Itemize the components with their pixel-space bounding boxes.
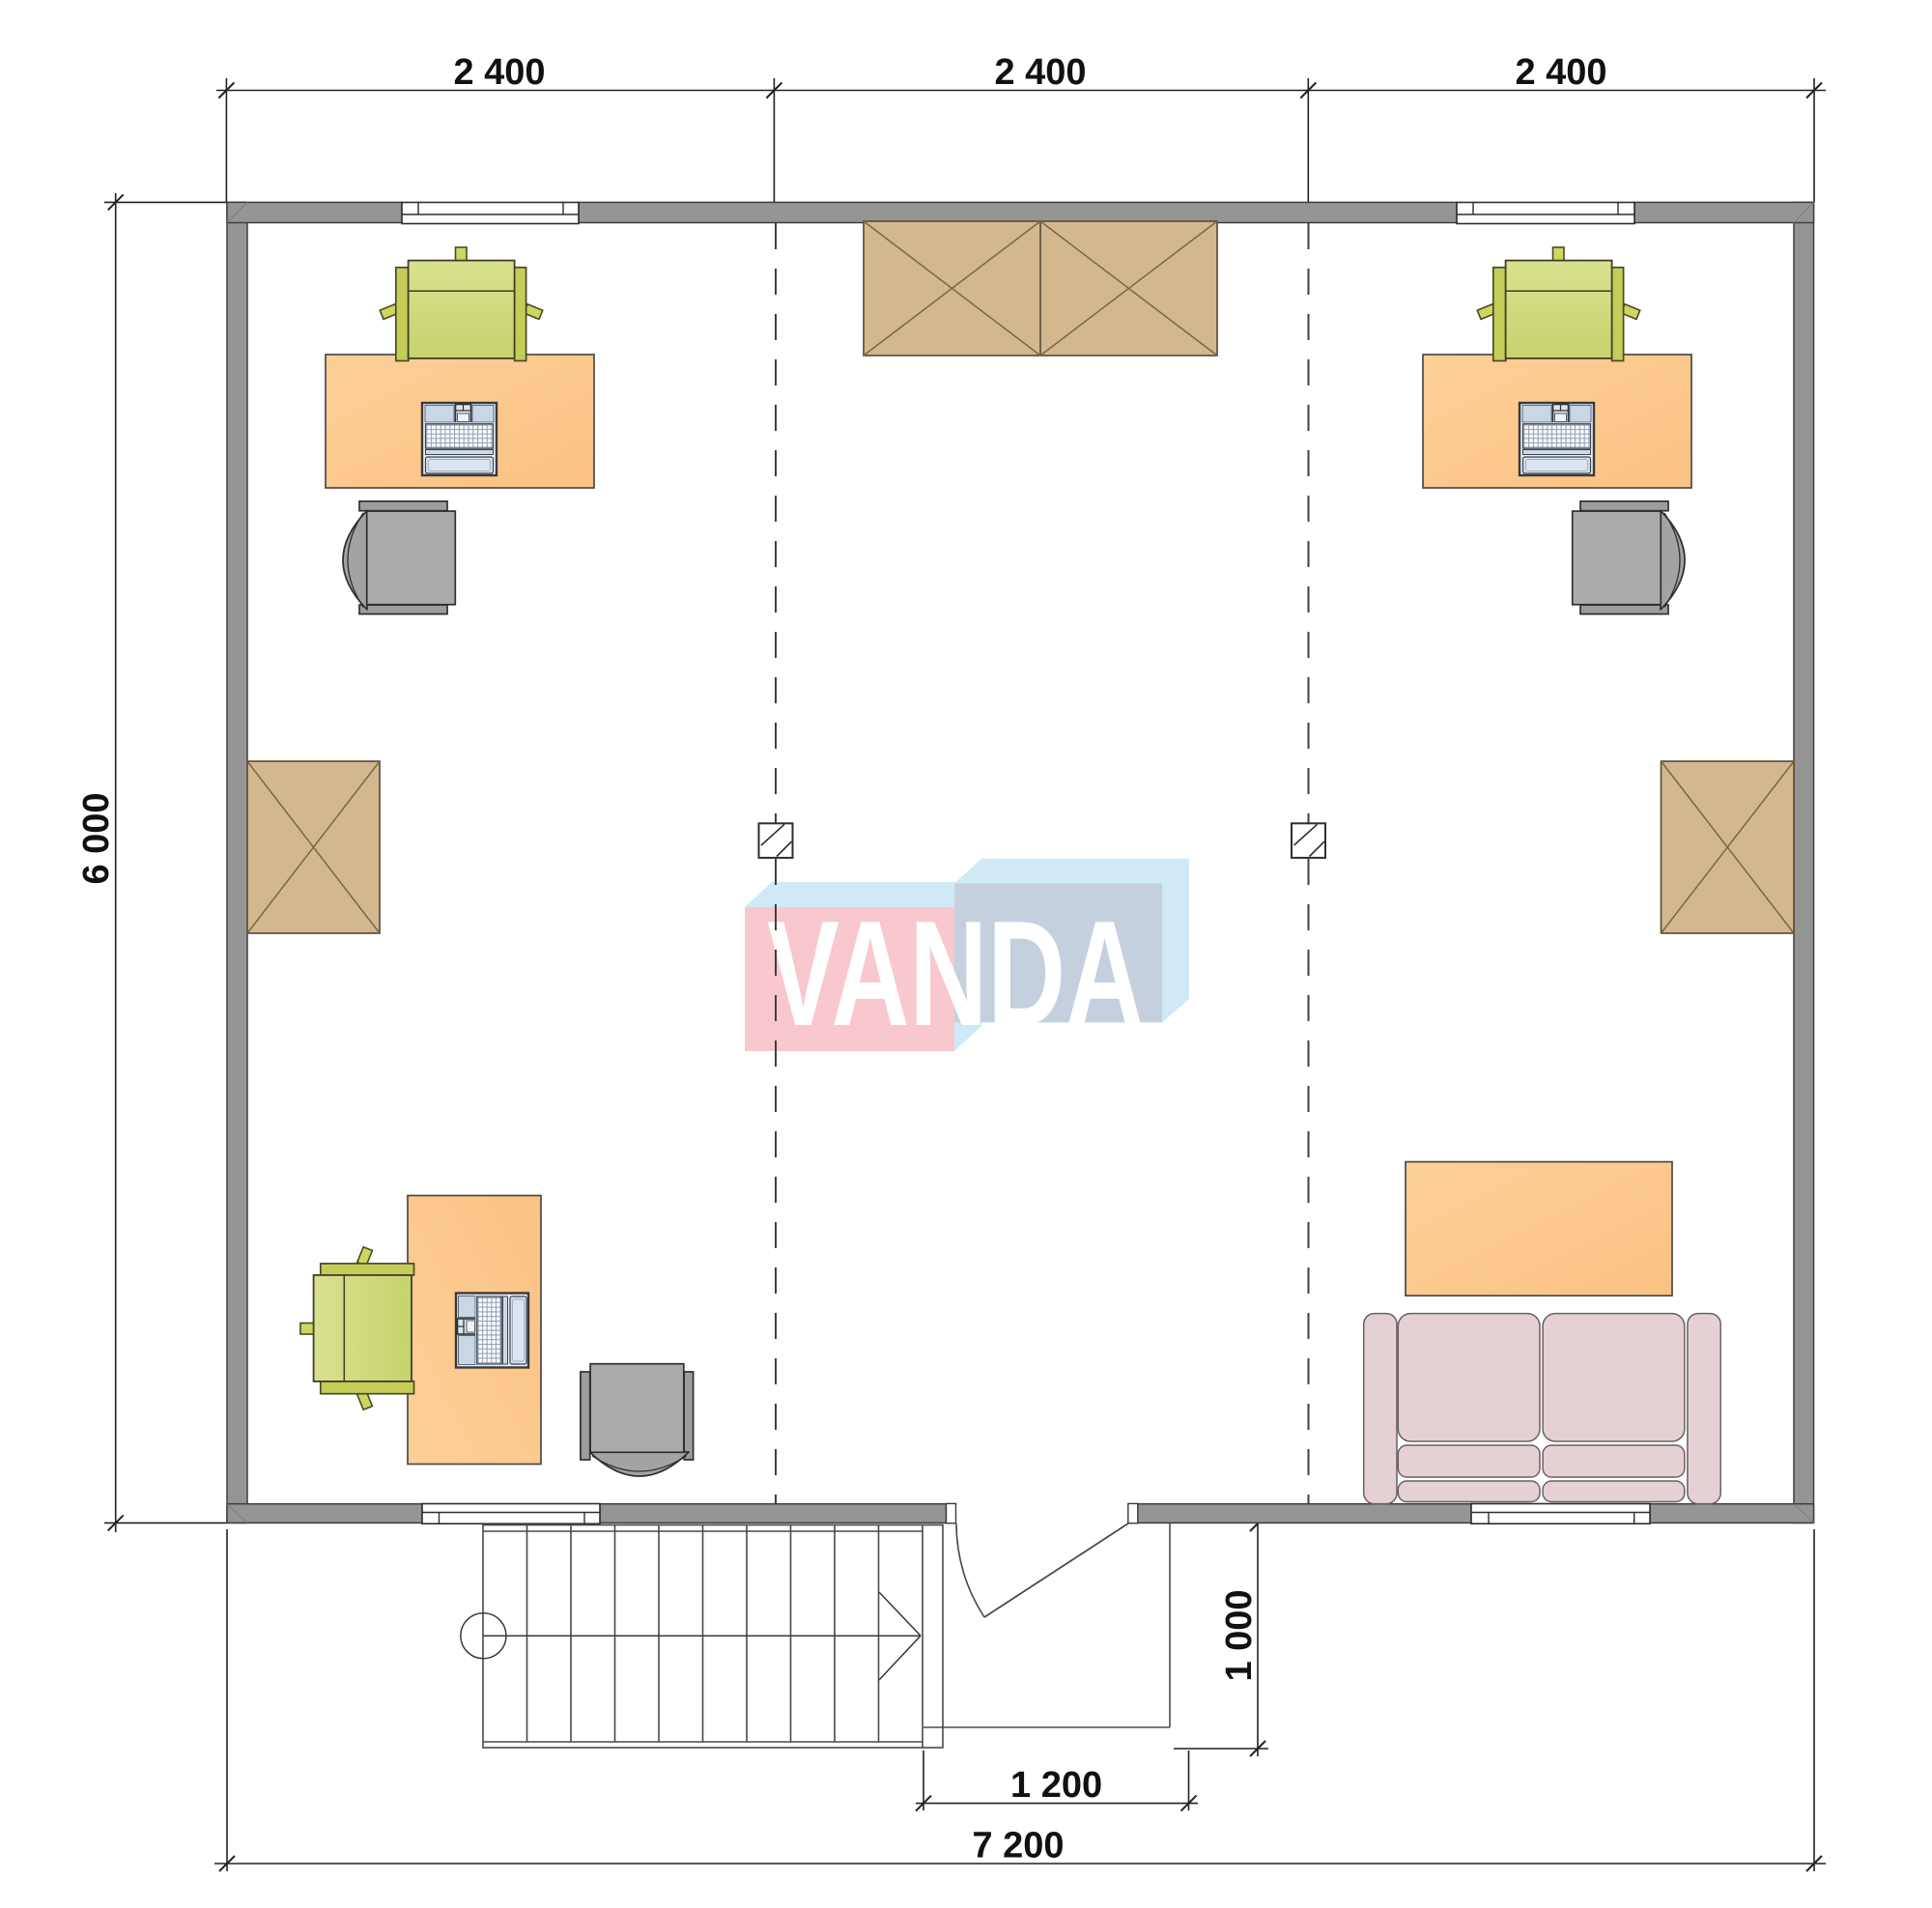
svg-text:1 000: 1 000 [1219, 1589, 1260, 1681]
svg-text:2 400: 2 400 [994, 52, 1086, 93]
svg-text:2 400: 2 400 [453, 52, 545, 93]
svg-text:7 200: 7 200 [972, 1826, 1064, 1866]
svg-text:1 200: 1 200 [1010, 1765, 1102, 1806]
svg-text:VANDA: VANDA [767, 890, 1144, 1058]
svg-text:6 000: 6 000 [76, 792, 117, 884]
svg-text:2 400: 2 400 [1515, 52, 1606, 93]
